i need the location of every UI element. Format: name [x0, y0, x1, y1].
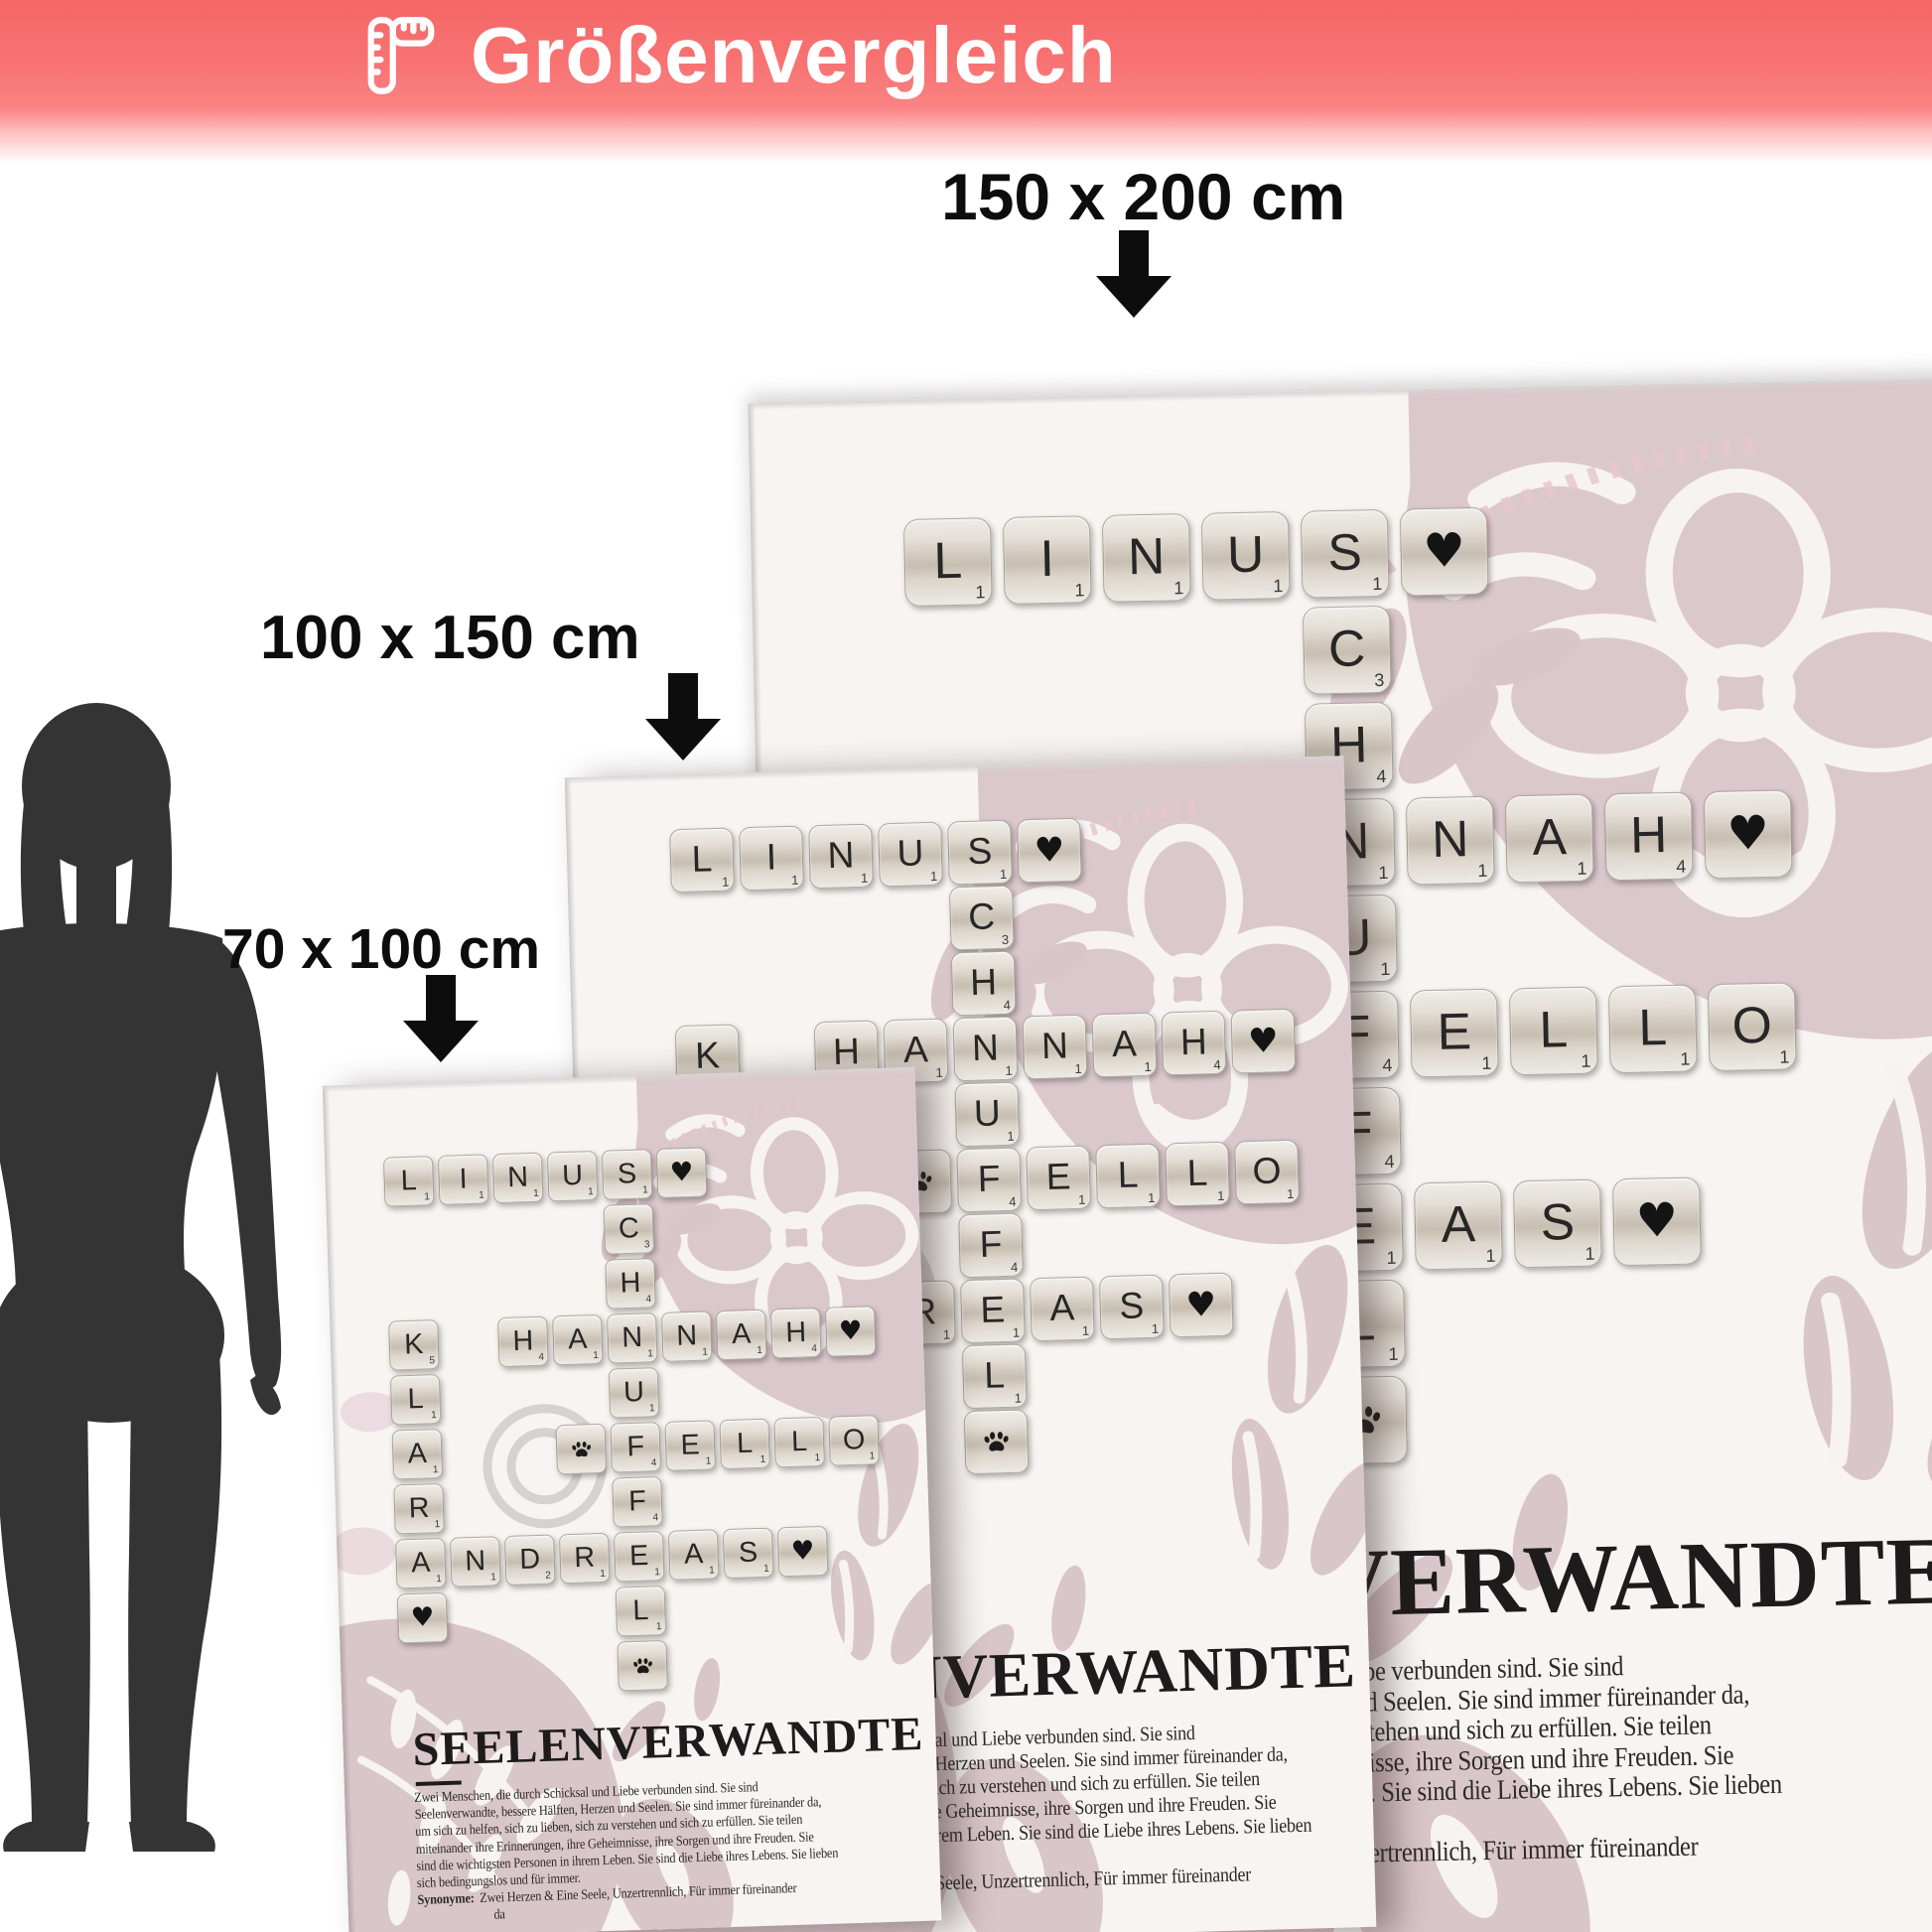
tile-letter: H — [1630, 809, 1668, 861]
scrabble-tile-S: S1 — [1513, 1179, 1602, 1269]
scrabble-tile-C: C3 — [604, 1203, 655, 1255]
tile-letter: N — [827, 837, 855, 875]
tile-letter: H — [1179, 1024, 1207, 1061]
tile-letter: F — [979, 1226, 1003, 1264]
tile-letter: A — [903, 1032, 929, 1069]
scrabble-tile-R: R1 — [559, 1533, 611, 1585]
scrabble-tile-F: F4 — [956, 1148, 1022, 1213]
tile-value: 1 — [1581, 1051, 1590, 1069]
tile-letter: A — [732, 1319, 752, 1348]
tile-value: 1 — [1015, 1391, 1023, 1404]
scrabble-tile-heart: ♥ — [656, 1147, 708, 1198]
scrabble-tile-N: N1 — [492, 1153, 544, 1204]
tile-value: 1 — [702, 1348, 708, 1358]
tile-value: 4 — [811, 1344, 817, 1354]
scrabble-tile-heart: ♥ — [1169, 1273, 1234, 1338]
tile-value: 4 — [652, 1513, 658, 1523]
tile-value: 1 — [533, 1189, 539, 1199]
tile-letter: L — [632, 1596, 649, 1625]
tile-value: 1 — [649, 1404, 655, 1414]
tile-letter: S — [1540, 1196, 1575, 1248]
scrabble-tile-O: O1 — [1234, 1140, 1300, 1205]
banner-title: Größenvergleich — [471, 16, 1117, 95]
scrabble-tile-paw — [964, 1409, 1030, 1474]
tile-value: 1 — [943, 1327, 951, 1340]
scrabble-tile-L: L1 — [1608, 984, 1698, 1073]
tile-value: 4 — [538, 1353, 544, 1363]
tile-value: 1 — [791, 873, 799, 886]
tile-value: 1 — [436, 1575, 442, 1585]
tile-letter: L — [1539, 1004, 1569, 1055]
tile-value: 1 — [642, 1185, 648, 1195]
tile-letter: C — [968, 898, 996, 936]
heart-icon: ♥ — [838, 1317, 862, 1344]
scrabble-tile-A: A1 — [1414, 1181, 1503, 1271]
tile-value: 1 — [433, 1465, 439, 1475]
tile-letter: E — [980, 1292, 1006, 1329]
tile-value: 5 — [429, 1356, 435, 1366]
tile-letter: A — [1441, 1198, 1475, 1250]
heart-icon: ♥ — [1185, 1288, 1217, 1322]
tile-value: 1 — [647, 1349, 653, 1359]
scrabble-tile-U: U1 — [547, 1151, 599, 1202]
heart-icon: ♥ — [1248, 1024, 1280, 1058]
tile-value: 1 — [1074, 581, 1084, 599]
tile-value: 1 — [1000, 867, 1008, 880]
scrabble-tile-E: E1 — [960, 1278, 1026, 1343]
tile-letter: S — [1327, 527, 1362, 579]
scrabble-tile-N: N1 — [1023, 1015, 1088, 1080]
tile-letter: L — [984, 1357, 1006, 1395]
scrabble-tile-C: C3 — [1303, 606, 1392, 695]
tile-letter: O — [842, 1426, 865, 1454]
scrabble-tile-heart: ♥ — [1400, 507, 1489, 597]
scrabble-tile-A: A1 — [668, 1529, 720, 1581]
scrabble-tile-L: L1 — [1095, 1144, 1161, 1209]
scrabble-tile-heart: ♥ — [1230, 1009, 1296, 1074]
tile-letter: E — [680, 1431, 700, 1459]
down-arrow-icon — [645, 673, 721, 760]
tile-letter: S — [1119, 1288, 1145, 1325]
tile-value: 1 — [760, 1455, 766, 1465]
tile-letter: A — [1532, 811, 1567, 863]
scrabble-tile-paw — [617, 1640, 668, 1692]
tile-value: 1 — [861, 871, 869, 884]
tile-value: 1 — [1074, 1061, 1082, 1074]
paw-icon — [568, 1437, 594, 1462]
scrabble-tile-I: I1 — [438, 1154, 489, 1205]
scrabble-tile-S: S1 — [1099, 1275, 1165, 1340]
tile-letter: I — [1039, 533, 1054, 585]
tile-value: 1 — [593, 1351, 599, 1361]
scrabble-tile-F: F4 — [958, 1213, 1024, 1279]
scrabble-tile-O: O1 — [828, 1415, 880, 1466]
scrabble-tile-N: N1 — [953, 1017, 1019, 1082]
heart-icon: ♥ — [790, 1538, 814, 1565]
scrabble-tile-U: U1 — [878, 822, 943, 888]
down-arrow-icon — [403, 975, 479, 1062]
scrabble-tile-heart: ♥ — [397, 1592, 449, 1644]
tile-letter: N — [972, 1030, 1000, 1067]
tile-letter: N — [1432, 813, 1469, 865]
tile-letter: E — [1045, 1159, 1071, 1196]
tile-letter: S — [967, 833, 993, 871]
tile-value: 1 — [763, 1565, 769, 1575]
tile-value: 2 — [545, 1572, 551, 1582]
scrabble-tile-L: L1 — [719, 1419, 770, 1470]
tile-value: 1 — [1148, 1190, 1156, 1203]
tile-value: 1 — [1152, 1321, 1160, 1334]
tile-value: 4 — [1676, 857, 1686, 875]
scrabble-tile-H: H4 — [770, 1308, 822, 1359]
size-label-100x150: 100 x 150 cm — [260, 608, 640, 669]
tile-value: 1 — [588, 1187, 594, 1197]
scrabble-tile-N: N1 — [661, 1311, 713, 1362]
scrabble-tile-E: E1 — [664, 1420, 716, 1471]
tile-value: 1 — [1273, 577, 1283, 595]
heart-icon: ♥ — [1423, 528, 1465, 576]
tile-value: 1 — [1779, 1047, 1789, 1065]
tile-value: 1 — [1372, 574, 1382, 592]
tile-value: 4 — [651, 1458, 657, 1468]
tile-letter: S — [618, 1160, 637, 1188]
tile-letter: F — [977, 1161, 1001, 1198]
scrabble-tile-L: L1 — [1509, 987, 1598, 1076]
tile-value: 1 — [1005, 1063, 1013, 1076]
tile-value: 1 — [1577, 859, 1587, 877]
tile-value: 4 — [1009, 1194, 1017, 1207]
scrabble-tile-O: O1 — [1708, 982, 1797, 1071]
tile-letter: E — [1437, 1006, 1471, 1057]
tile-value: 4 — [645, 1295, 651, 1305]
tile-letter: L — [791, 1427, 808, 1455]
tile-value: 4 — [1376, 766, 1386, 784]
poster-70x100: L1I1N1U1S1♥C3H4K5H4A1N1N1A1H4♥L1U1A1 F4E… — [323, 1067, 942, 1932]
tile-letter: U — [897, 835, 924, 873]
tile-letter: H — [833, 1034, 861, 1071]
tile-value: 1 — [1173, 579, 1183, 597]
scrabble-tile-N: N1 — [808, 824, 874, 890]
tile-letter: N — [507, 1163, 529, 1191]
tile-letter: S — [739, 1538, 759, 1567]
tile-value: 1 — [1481, 1053, 1491, 1071]
size-label-70x100: 70 x 100 cm — [222, 921, 540, 978]
tile-value: 1 — [815, 1453, 821, 1463]
scrabble-tile-A: A1 — [395, 1538, 447, 1589]
banner-content: Größenvergleich — [357, 12, 1117, 99]
tile-value: 1 — [1082, 1323, 1090, 1336]
scrabble-tile-S: S1 — [947, 820, 1013, 886]
tile-letter: C — [618, 1214, 639, 1243]
tile-value: 1 — [1477, 861, 1487, 879]
tile-letter: L — [407, 1385, 424, 1414]
scrabble-tile-A: A1 — [392, 1429, 444, 1480]
tile-letter: L — [691, 841, 713, 879]
tile-letter: N — [1128, 531, 1166, 583]
tile-value: 1 — [479, 1191, 484, 1201]
heart-icon: ♥ — [1635, 1197, 1678, 1245]
scrabble-tile-A: A1 — [1505, 794, 1594, 884]
tile-value: 1 — [757, 1346, 762, 1356]
tile-letter: A — [411, 1548, 431, 1577]
scrabble-tile-H: H4 — [1604, 791, 1694, 881]
tile-letter: R — [408, 1493, 430, 1522]
scrabble-tile-L: L1 — [616, 1586, 667, 1637]
tile-value: 1 — [930, 869, 938, 882]
tile-letter: K — [404, 1330, 424, 1359]
tile-letter: U — [1227, 529, 1265, 581]
scrabble-tile-E: E1 — [1026, 1146, 1091, 1211]
tile-value: 1 — [1287, 1186, 1295, 1199]
tile-letter: U — [973, 1095, 1001, 1133]
tile-letter: O — [1252, 1153, 1282, 1190]
heart-icon: ♥ — [669, 1160, 693, 1186]
scrabble-tile-K: K5 — [388, 1319, 440, 1371]
tile-value: 1 — [600, 1570, 606, 1580]
scrabble-tile-H: H4 — [605, 1258, 656, 1310]
tile-letter: L — [1186, 1155, 1208, 1192]
tile-letter: A — [407, 1439, 427, 1467]
tile-letter: N — [465, 1547, 486, 1576]
tile-value: 3 — [1002, 932, 1010, 945]
tile-value: 1 — [1144, 1059, 1152, 1072]
tile-letter: N — [621, 1323, 643, 1352]
scrabble-tile-U: U1 — [954, 1082, 1020, 1148]
tile-letter: O — [1731, 1000, 1772, 1051]
scrabble-tile-heart: ♥ — [1612, 1176, 1702, 1266]
tile-value: 1 — [975, 583, 985, 601]
tile-letter: C — [1328, 623, 1366, 675]
scrabble-tile-N: N1 — [1406, 796, 1495, 886]
tile-value: 1 — [1078, 1192, 1086, 1205]
scrabble-tile-S: S1 — [723, 1528, 774, 1580]
scrabble-tile-L: L1 — [1165, 1142, 1230, 1207]
scrabble-tile-A: A1 — [552, 1314, 604, 1366]
scrabble-tile-L: L1 — [390, 1374, 442, 1426]
tile-value: 4 — [1003, 998, 1011, 1011]
synonyms-label: Synonyme: — [417, 1891, 475, 1908]
size-label-150x200: 150 x 200 cm — [941, 164, 1345, 229]
header-banner: Größenvergleich — [0, 0, 1932, 164]
tile-letter: A — [1049, 1290, 1075, 1327]
tile-value: 1 — [1485, 1246, 1495, 1264]
tile-letter: A — [1111, 1026, 1137, 1063]
scrabble-tile-F: F4 — [612, 1476, 663, 1528]
tile-letter: L — [1117, 1157, 1139, 1194]
scrabble-tile-heart: ♥ — [1704, 789, 1793, 879]
tile-value: 1 — [1386, 1248, 1396, 1266]
tile-letter: H — [970, 964, 998, 1002]
tile-letter: U — [623, 1378, 645, 1407]
scrabble-tile-F: F4 — [610, 1422, 661, 1473]
tile-letter: F — [628, 1487, 646, 1516]
scrabble-tile-N: N1 — [607, 1312, 658, 1364]
tile-letter: H — [785, 1317, 807, 1346]
tile-letter: H — [512, 1326, 534, 1355]
size-comparison-graphic: Größenvergleich — [0, 0, 1932, 1932]
tile-value: 1 — [1388, 1344, 1398, 1362]
tile-value: 1 — [1585, 1244, 1594, 1262]
scrabble-tile-D: D2 — [504, 1534, 556, 1586]
scrabble-tile-U: U1 — [609, 1367, 660, 1419]
tile-value: 1 — [1217, 1188, 1225, 1201]
scrabble-tile-N: N1 — [450, 1536, 501, 1587]
scrabble-tile-C: C3 — [949, 886, 1015, 951]
tile-value: 1 — [1013, 1325, 1021, 1338]
scrabble-tile-U: U1 — [1201, 511, 1291, 601]
scrabble-tile-A: A1 — [1030, 1277, 1095, 1342]
female-silhouette — [0, 695, 298, 1857]
tile-letter: L — [1638, 1002, 1668, 1053]
tile-letter: E — [629, 1542, 649, 1571]
tile-letter: L — [737, 1429, 754, 1457]
down-arrow-icon — [1096, 230, 1172, 318]
tile-value: 1 — [424, 1192, 430, 1202]
tile-value: 1 — [935, 1065, 943, 1078]
scrabble-tile-L: L1 — [962, 1343, 1028, 1409]
tile-letter: U — [562, 1161, 584, 1189]
heart-icon: ♥ — [1726, 810, 1769, 858]
tile-letter: H — [620, 1269, 641, 1298]
scrabble-tile-H: H4 — [951, 951, 1017, 1017]
tile-value: 3 — [644, 1240, 650, 1250]
heart-icon: ♥ — [410, 1604, 434, 1631]
scrabble-tile-S: S1 — [602, 1149, 653, 1200]
scrabble-tile-E: E1 — [1410, 989, 1499, 1078]
tile-letter: N — [676, 1321, 698, 1350]
paw-icon — [980, 1426, 1013, 1458]
scrabble-tile-heart: ♥ — [777, 1526, 829, 1578]
scrabble-tile-L: L1 — [773, 1417, 825, 1468]
tile-value: 1 — [722, 875, 730, 888]
scrabble-tile-H: H4 — [497, 1316, 549, 1368]
tile-value: 4 — [1384, 1152, 1394, 1170]
tile-value: 1 — [654, 1568, 660, 1578]
poster-definition: Zwei Menschen, die durch Schicksal und L… — [414, 1777, 840, 1927]
tile-letter: R — [574, 1543, 596, 1572]
tile-value: 4 — [1011, 1260, 1019, 1273]
tile-letter: N — [1040, 1028, 1068, 1065]
scrabble-tile-A: A1 — [716, 1310, 767, 1361]
scrabble-tile-E: E1 — [614, 1531, 665, 1583]
scrabble-tile-R: R1 — [393, 1483, 445, 1535]
scrabble-tile-S: S1 — [1301, 509, 1390, 599]
scrabble-tile-L: L1 — [383, 1156, 435, 1207]
tile-value: 1 — [870, 1451, 876, 1461]
scrabble-tile-heart: ♥ — [825, 1306, 877, 1357]
tile-letter: I — [459, 1165, 468, 1193]
tile-value: 1 — [709, 1566, 715, 1576]
tile-value: 1 — [1378, 863, 1388, 881]
tile-value: 4 — [1213, 1057, 1221, 1070]
scrabble-tile-A: A1 — [1092, 1013, 1158, 1078]
tile-letter: A — [684, 1540, 704, 1569]
heart-icon: ♥ — [1034, 833, 1065, 868]
scrabble-tile-paw — [555, 1424, 607, 1475]
tile-value: 1 — [490, 1573, 496, 1583]
scrabble-tile-I: I1 — [1003, 515, 1092, 605]
ruler-icon — [357, 12, 445, 99]
scrabble-tile-heart: ♥ — [1017, 818, 1082, 884]
paw-icon — [629, 1653, 655, 1679]
scrabble-tile-I: I1 — [739, 826, 804, 892]
scrabble-tile-N: N1 — [1102, 513, 1191, 603]
tile-letter: I — [765, 839, 776, 876]
tile-value: 1 — [431, 1411, 437, 1421]
tile-value: 1 — [1680, 1049, 1690, 1067]
tile-letter: F — [626, 1433, 644, 1461]
tile-letter: L — [400, 1167, 417, 1195]
scrabble-tile-H: H4 — [1162, 1011, 1227, 1076]
tile-value: 1 — [434, 1520, 440, 1530]
scrabble-tile-L: L1 — [903, 517, 993, 607]
tile-value: 4 — [1382, 1055, 1392, 1073]
tile-letter: A — [568, 1324, 588, 1353]
tile-value: 3 — [1374, 670, 1384, 688]
tile-value: 1 — [1007, 1129, 1015, 1142]
tile-letter: K — [695, 1037, 721, 1075]
tile-value: 1 — [706, 1456, 712, 1466]
tile-value: 1 — [656, 1622, 662, 1632]
tile-value: 1 — [1380, 959, 1390, 977]
tile-letter: L — [933, 535, 963, 587]
tile-letter: D — [519, 1545, 541, 1574]
scrabble-tile-L: L1 — [669, 827, 735, 893]
